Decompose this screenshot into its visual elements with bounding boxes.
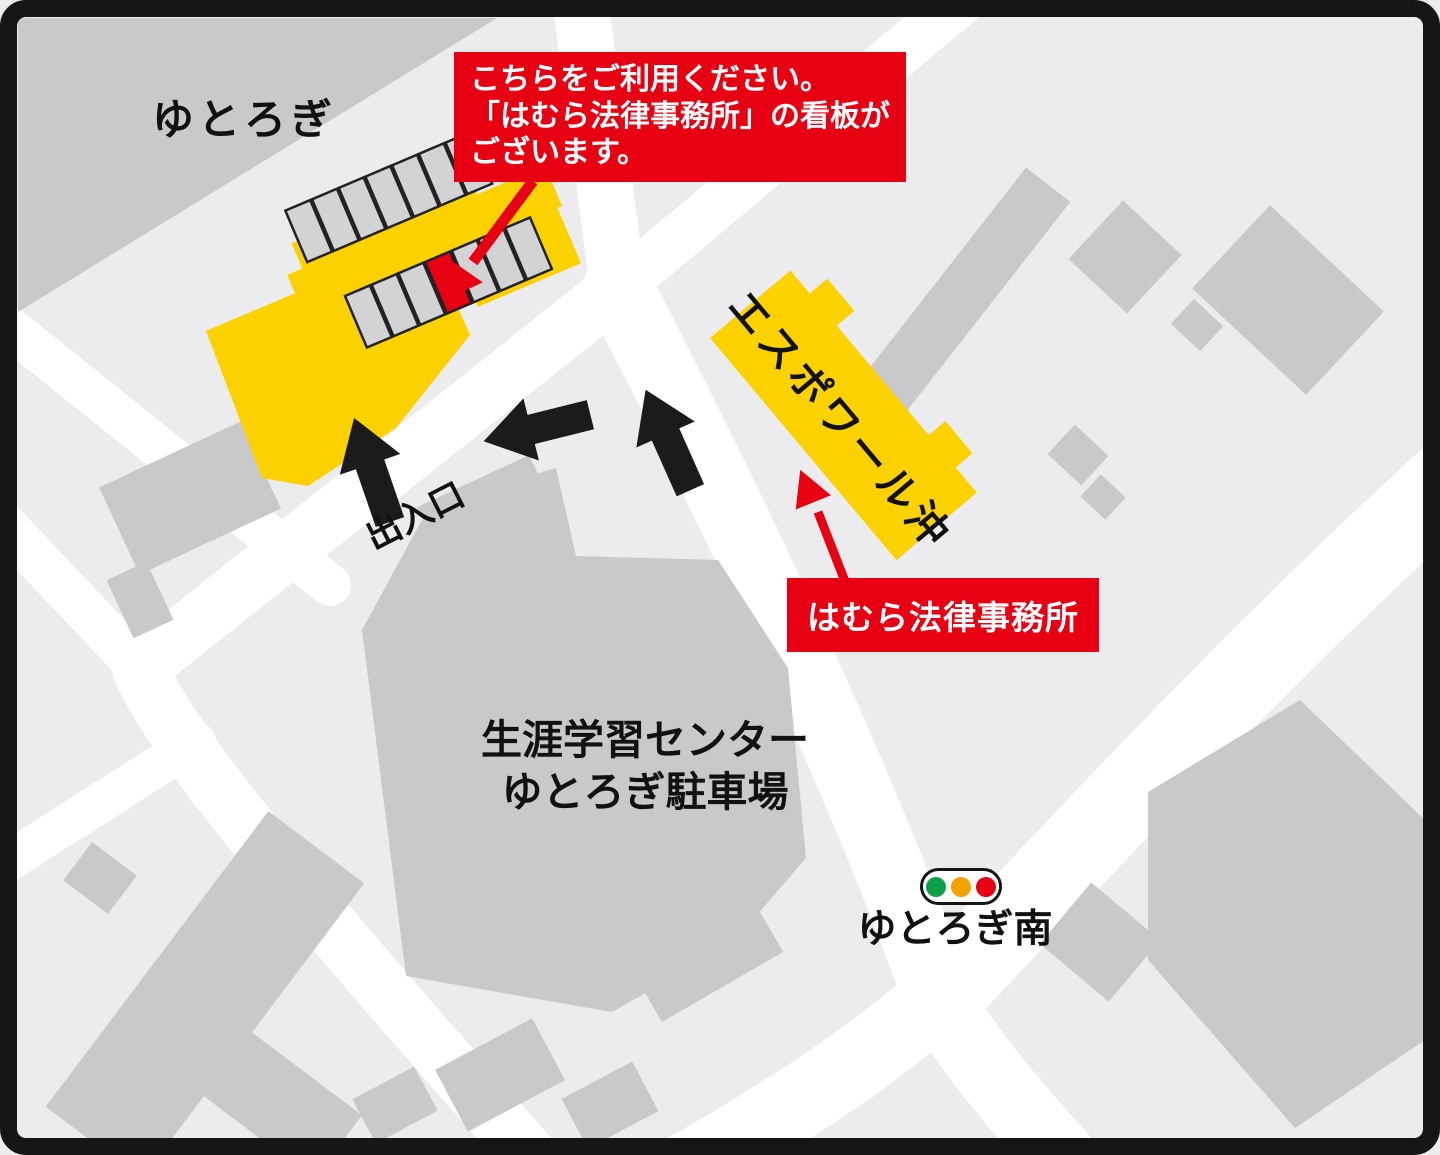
callout-parking-note: こちらをご利用ください。 「はむら法律事務所」の看板が ございます。 (454, 52, 906, 182)
callout-parking-note-line1: こちらをご利用ください。 (470, 62, 890, 99)
label-yutorogi-minami: ゆとろぎ南 (845, 898, 1065, 954)
access-map: ゆとろぎ 出入口 エスポワール沖 生涯学習センター ゆとろぎ駐車場 ゆとろぎ南 … (0, 0, 1440, 1155)
label-learning-center-line2: ゆとろぎ駐車場 (420, 766, 870, 818)
traffic-light-dot (976, 877, 996, 897)
callout-parking-note-line2: 「はむら法律事務所」の看板が (470, 99, 890, 136)
label-learning-center-line1: 生涯学習センター (420, 714, 870, 766)
traffic-light-icon (920, 868, 1002, 905)
callout-parking-note-line3: ございます。 (470, 135, 890, 172)
label-yutorogi: ゆとろぎ (152, 86, 336, 147)
traffic-light-dot (926, 877, 946, 897)
label-learning-center: 生涯学習センター ゆとろぎ駐車場 (420, 714, 870, 819)
traffic-light-dot (951, 877, 971, 897)
callout-office: はむら法律事務所 (787, 578, 1099, 652)
